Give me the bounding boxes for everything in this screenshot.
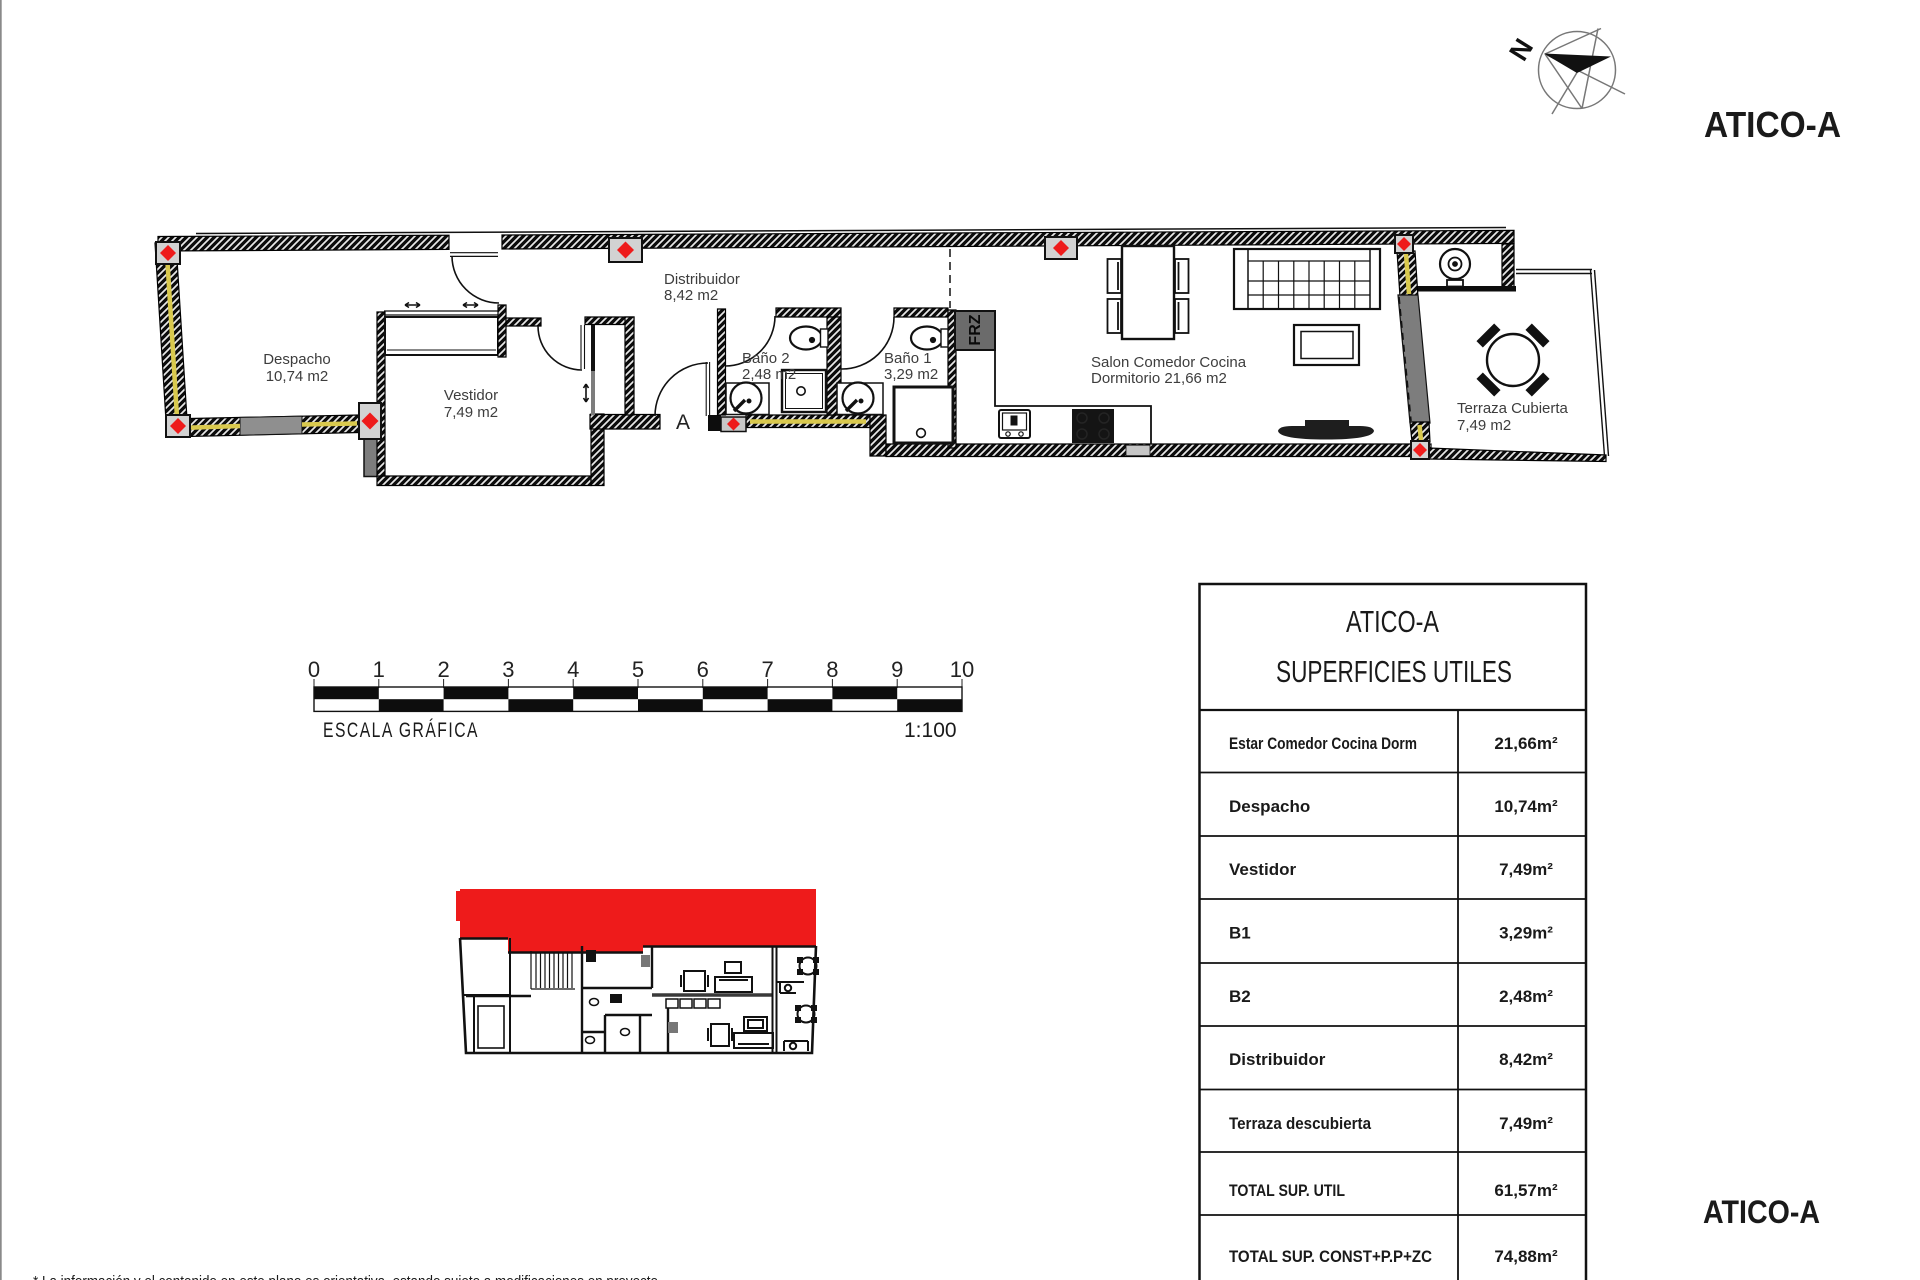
svg-text:1: 1: [373, 657, 385, 682]
svg-text:Despacho: Despacho: [263, 351, 331, 368]
svg-text:4: 4: [567, 657, 579, 682]
svg-text:FRZ: FRZ: [967, 314, 984, 345]
svg-text:* La información y el contenid: * La información y el contenido en este …: [33, 1273, 658, 1280]
svg-text:B1: B1: [1229, 924, 1251, 943]
svg-text:Despacho: Despacho: [1229, 797, 1310, 816]
svg-text:A: A: [676, 411, 690, 434]
svg-text:10: 10: [950, 657, 974, 682]
svg-text:ATICO-A: ATICO-A: [1703, 1194, 1820, 1230]
svg-text:Salon Comedor Cocina: Salon Comedor Cocina: [1091, 354, 1247, 371]
svg-text:8: 8: [826, 657, 838, 682]
svg-text:ATICO-A: ATICO-A: [1704, 104, 1841, 145]
svg-text:Distribuidor: Distribuidor: [1229, 1050, 1326, 1069]
svg-text:0: 0: [308, 657, 320, 682]
svg-text:2,48 m2: 2,48 m2: [742, 366, 796, 383]
svg-text:ESCALA GRÁFICA: ESCALA GRÁFICA: [323, 719, 479, 742]
svg-text:7,49m²: 7,49m²: [1499, 1114, 1553, 1133]
svg-text:SUPERFICIES UTILES: SUPERFICIES UTILES: [1276, 654, 1512, 689]
svg-text:5: 5: [632, 657, 644, 682]
svg-text:21,66m²: 21,66m²: [1494, 734, 1558, 753]
svg-text:Distribuidor: Distribuidor: [664, 271, 740, 288]
svg-text:3: 3: [502, 657, 514, 682]
svg-text:8,42 m2: 8,42 m2: [664, 287, 718, 304]
svg-text:7: 7: [761, 657, 773, 682]
svg-text:Terraza descubierta: Terraza descubierta: [1229, 1114, 1371, 1133]
svg-text:8,42m²: 8,42m²: [1499, 1050, 1553, 1069]
svg-text:3,29m²: 3,29m²: [1499, 924, 1553, 943]
svg-text:Terraza Cubierta: Terraza Cubierta: [1457, 400, 1569, 417]
svg-text:B2: B2: [1229, 987, 1251, 1006]
svg-text:1:100: 1:100: [904, 719, 957, 742]
svg-text:Vestidor: Vestidor: [444, 387, 498, 404]
svg-text:9: 9: [891, 657, 903, 682]
svg-text:Dormitorio 21,66 m2: Dormitorio 21,66 m2: [1091, 370, 1227, 387]
svg-text:7,49 m2: 7,49 m2: [1457, 417, 1511, 434]
svg-text:61,57m²: 61,57m²: [1494, 1181, 1558, 1200]
svg-text:Baño 1: Baño 1: [884, 350, 932, 367]
svg-text:TOTAL SUP. CONST+P.P+ZC: TOTAL SUP. CONST+P.P+ZC: [1229, 1247, 1432, 1266]
svg-text:2: 2: [437, 657, 449, 682]
svg-text:2,48m²: 2,48m²: [1499, 987, 1553, 1006]
svg-text:10,74 m2: 10,74 m2: [266, 368, 329, 385]
svg-text:Estar Comedor Cocina Dorm: Estar Comedor Cocina Dorm: [1229, 734, 1417, 753]
svg-text:7,49 m2: 7,49 m2: [444, 404, 498, 421]
svg-text:7,49m²: 7,49m²: [1499, 860, 1553, 879]
svg-text:TOTAL SUP. UTIL: TOTAL SUP. UTIL: [1229, 1181, 1345, 1200]
svg-text:Baño 2: Baño 2: [742, 350, 790, 367]
svg-text:ATICO-A: ATICO-A: [1346, 604, 1439, 639]
svg-text:Vestidor: Vestidor: [1229, 860, 1296, 879]
svg-text:74,88m²: 74,88m²: [1494, 1247, 1558, 1266]
svg-text:3,29 m2: 3,29 m2: [884, 366, 938, 383]
svg-text:6: 6: [697, 657, 709, 682]
svg-text:10,74m²: 10,74m²: [1494, 797, 1558, 816]
